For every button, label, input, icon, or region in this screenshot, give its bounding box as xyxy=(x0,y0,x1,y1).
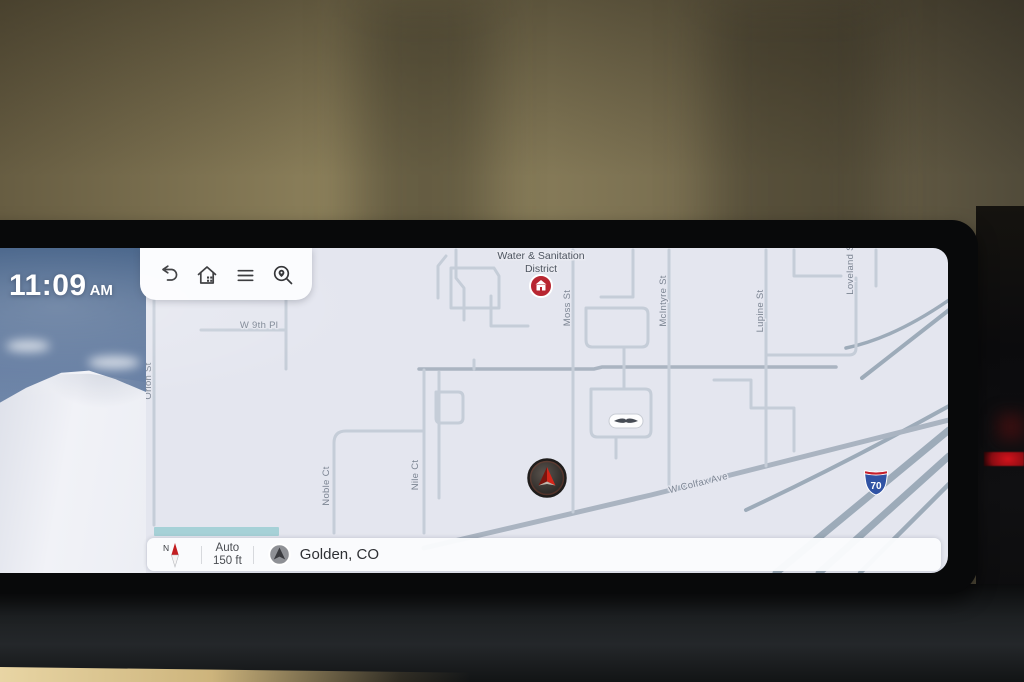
map-status-bar: N Auto 150 ft xyxy=(147,538,941,571)
hamburger-menu-icon xyxy=(234,264,257,287)
home-icon xyxy=(195,263,219,288)
street-label: Orion St xyxy=(146,362,154,399)
compass-needle-icon xyxy=(171,543,178,567)
street-label: Nile Ct xyxy=(410,460,421,491)
map-search-icon xyxy=(271,263,295,287)
poi-label-line1: Water & Sanitation xyxy=(497,250,584,262)
cloud xyxy=(6,340,50,352)
map-zoom-control[interactable]: Auto 150 ft xyxy=(213,542,242,568)
current-location-text: Golden, CO xyxy=(300,546,379,563)
undo-arrow-icon xyxy=(157,263,181,287)
map-scale-bar xyxy=(154,527,279,536)
clock-meridiem: AM xyxy=(90,282,113,299)
menu-button[interactable] xyxy=(231,261,259,289)
ambient-light-reflection xyxy=(998,414,1024,440)
main-roads xyxy=(419,367,948,548)
divider xyxy=(201,546,202,564)
street-label: Lupine St xyxy=(755,290,766,333)
home-button[interactable] xyxy=(193,261,221,289)
compass-north-label: N xyxy=(163,543,169,553)
divider xyxy=(253,546,254,564)
clock-widget-panel[interactable]: 11:09AM xyxy=(0,248,146,573)
compass-control[interactable]: N xyxy=(160,541,190,569)
highway-roads xyxy=(746,300,948,573)
back-button[interactable] xyxy=(155,261,183,289)
street-label: Loveland St xyxy=(845,248,856,295)
location-arrow-icon xyxy=(267,542,292,567)
zoom-scale: 150 ft xyxy=(213,555,242,568)
current-location-chip[interactable]: Golden, CO xyxy=(267,542,379,567)
poi-label-line2: District xyxy=(525,263,557,275)
genesis-badge-poi xyxy=(609,414,643,428)
ambient-light-strip xyxy=(984,452,1024,466)
interstate-70-shield: 70 xyxy=(865,471,888,495)
map-toolbar xyxy=(140,248,312,300)
vehicle-position-marker xyxy=(529,460,566,497)
dashboard-lower xyxy=(0,584,1024,682)
street-label: Noble Ct xyxy=(321,466,332,505)
car-dashboard-photo: 11:09AM xyxy=(0,0,1024,682)
street-label: McIntyre St xyxy=(658,275,669,326)
cloud xyxy=(88,356,140,369)
street-label: Moss St xyxy=(562,290,573,326)
infotainment-display: 11:09AM xyxy=(0,220,978,594)
clock: 11:09AM xyxy=(9,269,113,303)
clock-time: 11:09 xyxy=(9,269,87,302)
map-search-button[interactable] xyxy=(269,261,297,289)
infotainment-screen: 11:09AM xyxy=(0,248,948,573)
zoom-mode: Auto xyxy=(213,542,242,555)
water-district-poi-icon[interactable] xyxy=(530,275,552,297)
shield-number: 70 xyxy=(870,481,882,492)
street-label: W Colfax Ave xyxy=(668,471,729,496)
street-label: W 9th Pl xyxy=(240,320,278,331)
